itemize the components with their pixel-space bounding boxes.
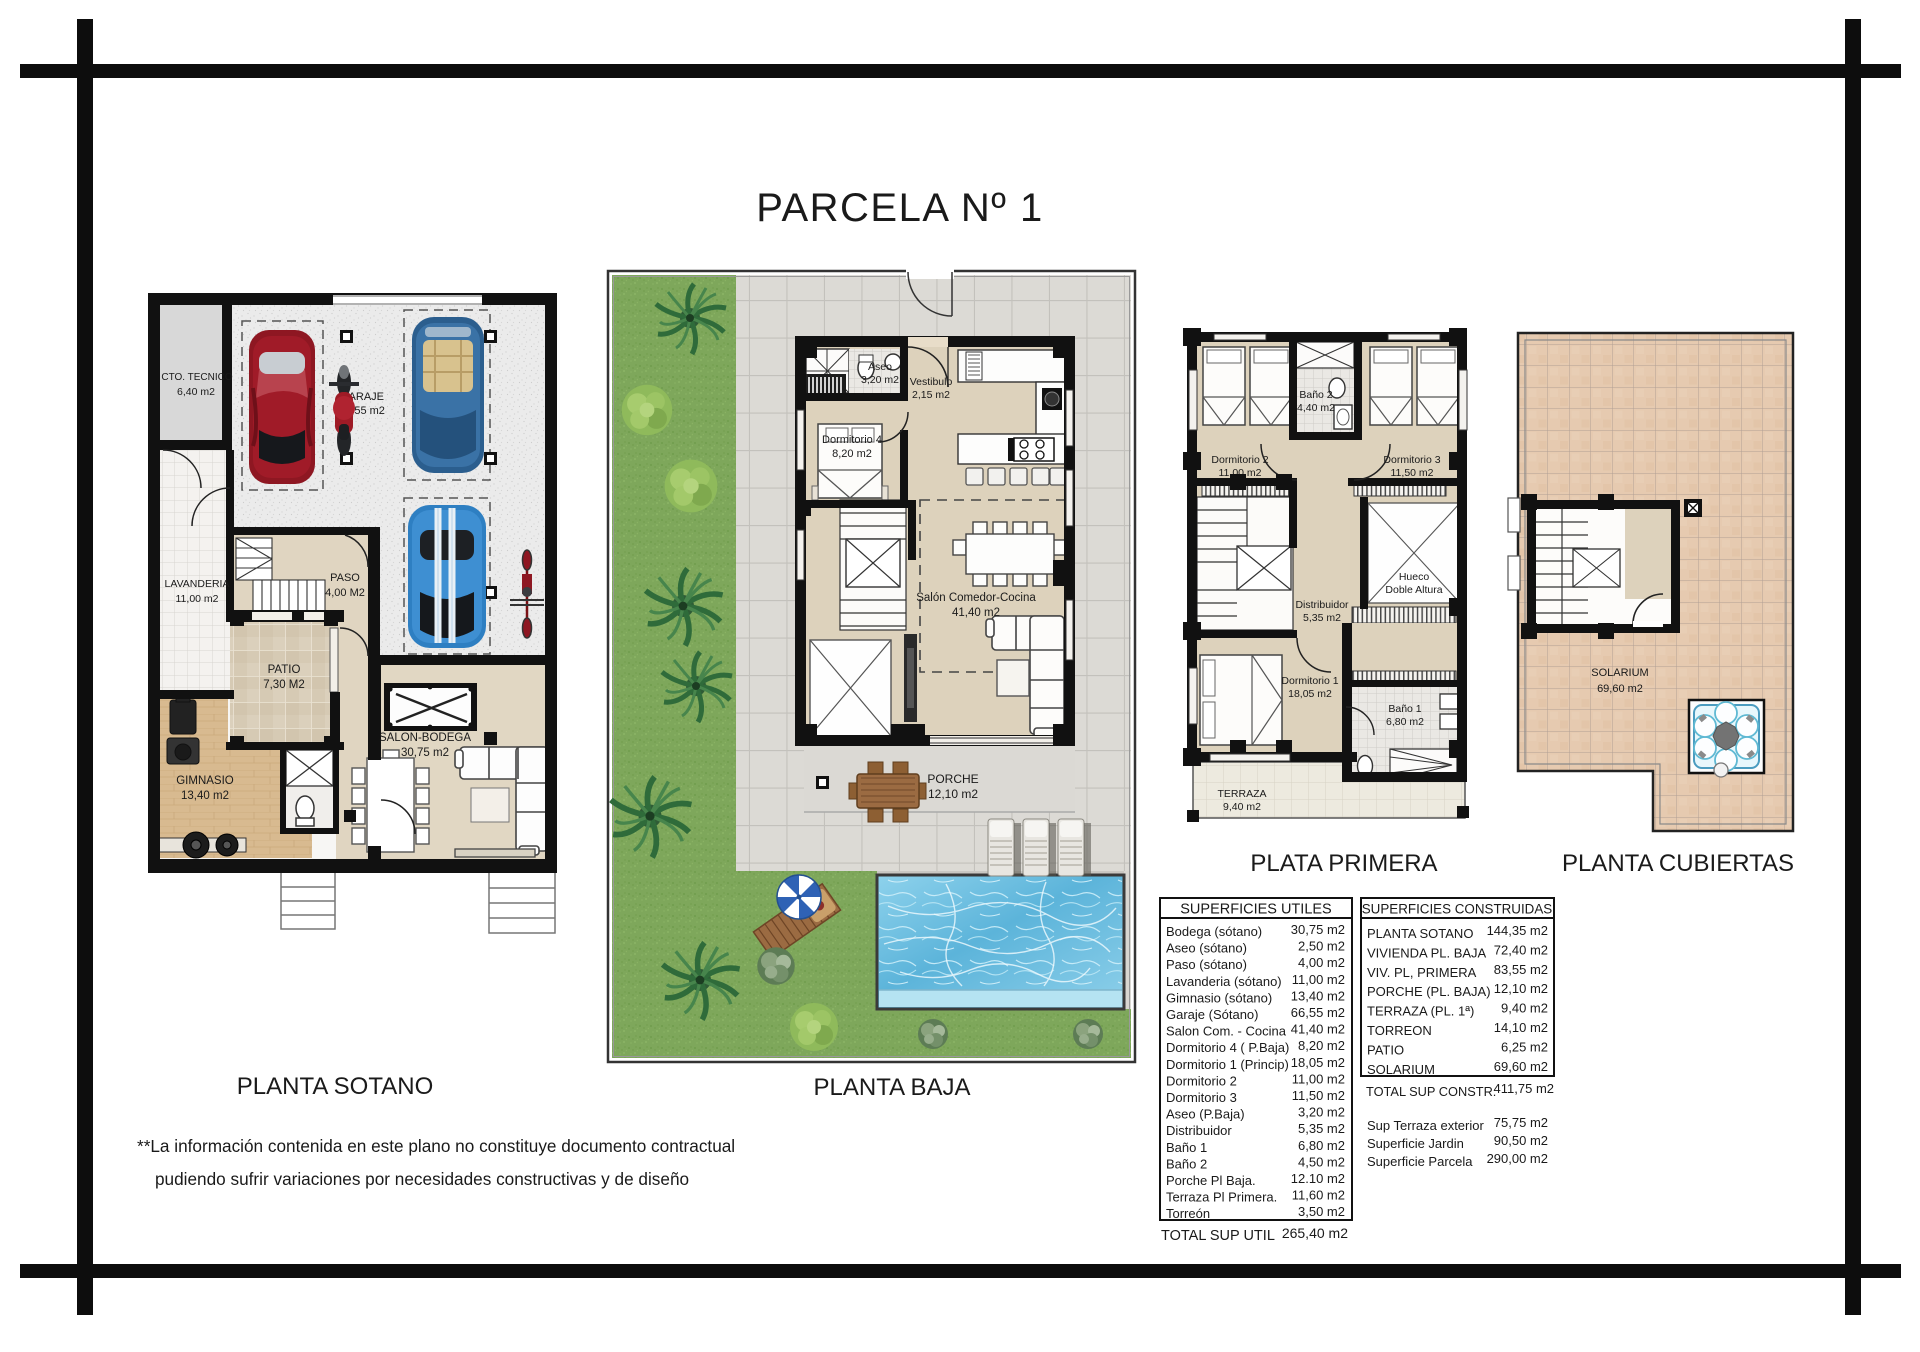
svg-text:90,50 m2: 90,50 m2 [1494,1133,1548,1148]
svg-text:LAVANDERIA: LAVANDERIA [165,578,230,590]
svg-text:Distribuidor: Distribuidor [1295,599,1349,611]
svg-text:9,40 m2: 9,40 m2 [1501,1001,1548,1016]
svg-text:Dormitorio 3: Dormitorio 3 [1166,1090,1237,1105]
svg-text:TERRAZA (PL. 1ª): TERRAZA (PL. 1ª) [1367,1004,1474,1019]
svg-text:3,20 m2: 3,20 m2 [861,374,899,386]
svg-text:PATIO: PATIO [268,664,301,676]
svg-text:Aseo (sótano): Aseo (sótano) [1166,941,1247,956]
svg-text:Sup Terraza exterior: Sup Terraza exterior [1367,1118,1484,1133]
svg-text:Salon Com. - Cocina: Salon Com. - Cocina [1166,1024,1287,1039]
svg-text:8,20 m2: 8,20 m2 [1298,1038,1345,1053]
svg-text:4,00 m2: 4,00 m2 [1298,955,1345,970]
svg-text:69,60 m2: 69,60 m2 [1597,683,1643,695]
svg-text:11,50 m2: 11,50 m2 [1292,1088,1345,1103]
svg-text:72,40 m2: 72,40 m2 [1494,942,1548,957]
svg-text:PORCHE (PL. BAJA): PORCHE (PL. BAJA) [1367,984,1491,999]
svg-text:6,80 m2: 6,80 m2 [1298,1138,1345,1153]
svg-text:11,50 m2: 11,50 m2 [1391,467,1434,479]
svg-text:Dormitorio 2: Dormitorio 2 [1166,1073,1237,1088]
svg-text:TORREON: TORREON [1367,1023,1432,1038]
svg-text:Salón Comedor-Cocina: Salón Comedor-Cocina [916,592,1036,604]
svg-text:5,35 m2: 5,35 m2 [1298,1121,1345,1136]
svg-text:VIVIENDA PL. BAJA: VIVIENDA PL. BAJA [1367,945,1487,960]
svg-text:TERRAZA: TERRAZA [1217,788,1266,800]
svg-text:41,40 m2: 41,40 m2 [952,607,1000,619]
svg-text:Gimnasio (sótano): Gimnasio (sótano) [1166,990,1272,1005]
svg-text:411,75 m2: 411,75 m2 [1494,1081,1554,1096]
svg-text:PLANTA SOTANO: PLANTA SOTANO [1367,926,1473,941]
svg-text:Distribuidor: Distribuidor [1166,1123,1232,1138]
svg-text:PORCHE: PORCHE [927,772,978,786]
svg-text:pudiendo sufrir variaciones po: pudiendo sufrir variaciones por necesida… [155,1169,689,1189]
svg-text:Baño 2: Baño 2 [1299,389,1332,401]
svg-text:PASO: PASO [330,572,360,584]
svg-text:Baño 1: Baño 1 [1388,703,1421,715]
svg-text:14,10 m2: 14,10 m2 [1494,1020,1548,1035]
svg-text:Aseo: Aseo [868,361,892,373]
svg-text:6,80 m2: 6,80 m2 [1386,716,1424,728]
svg-text:Superficie Jardin: Superficie Jardin [1367,1136,1464,1151]
svg-text:11,00 m2: 11,00 m2 [176,593,219,605]
svg-text:4,50 m2: 4,50 m2 [1298,1154,1345,1169]
svg-text:SOLARIUM: SOLARIUM [1367,1062,1435,1077]
svg-text:30,75 m2: 30,75 m2 [1291,922,1345,937]
svg-text:SUPERFICIES CONSTRUIDAS: SUPERFICIES CONSTRUIDAS [1362,902,1553,917]
svg-text:5,35 m2: 5,35 m2 [1303,612,1341,624]
svg-text:4,40 m2: 4,40 m2 [1297,402,1335,414]
svg-text:Dormitorio 2: Dormitorio 2 [1211,454,1268,466]
svg-text:SUPERFICIES UTILES: SUPERFICIES UTILES [1180,902,1331,918]
svg-text:8,20 m2: 8,20 m2 [832,448,872,460]
svg-text:2,50 m2: 2,50 m2 [1298,939,1345,954]
svg-text:290,00 m2: 290,00 m2 [1487,1151,1548,1166]
svg-text:6,40 m2: 6,40 m2 [177,386,215,398]
svg-text:Garaje (Sótano): Garaje (Sótano) [1166,1007,1259,1022]
svg-text:PARCELA Nº 1: PARCELA Nº 1 [756,186,1044,230]
svg-text:69,60 m2: 69,60 m2 [1494,1059,1548,1074]
svg-text:265,40 m2: 265,40 m2 [1282,1225,1348,1241]
svg-text:18,05 m2: 18,05 m2 [1288,688,1332,700]
svg-text:Dormitorio 4 ( P.Baja): Dormitorio 4 ( P.Baja) [1166,1040,1289,1055]
svg-text:4,00 M2: 4,00 M2 [325,587,365,599]
svg-text:Vestibulo: Vestibulo [910,376,953,388]
svg-text:11,60 m2: 11,60 m2 [1292,1188,1345,1203]
svg-text:Paso (sótano): Paso (sótano) [1166,957,1247,972]
svg-text:Torreón: Torreón [1166,1206,1210,1221]
svg-text:11,00 m2: 11,00 m2 [1292,1071,1345,1086]
svg-text:**La información contenida en: **La información contenida en este plano… [137,1136,735,1156]
svg-text:13,40 m2: 13,40 m2 [181,790,229,802]
svg-text:TOTAL SUP UTIL: TOTAL SUP UTIL [1161,1228,1275,1244]
svg-text:11,00 m2: 11,00 m2 [1292,972,1345,987]
svg-text:Dormitorio 1 (Princip): Dormitorio 1 (Princip) [1166,1057,1289,1072]
svg-text:Terraza Pl Primera.: Terraza Pl Primera. [1166,1190,1277,1205]
svg-text:83,55 m2: 83,55 m2 [1494,962,1548,977]
svg-text:144,35 m2: 144,35 m2 [1487,923,1548,938]
svg-text:PATIO: PATIO [1367,1042,1404,1057]
svg-text:Bodega (sótano): Bodega (sótano) [1166,924,1262,939]
svg-text:Dormitorio 3: Dormitorio 3 [1383,454,1440,466]
svg-text:Baño 1: Baño 1 [1166,1140,1207,1155]
svg-text:75,75 m2: 75,75 m2 [1494,1115,1548,1130]
svg-text:VIV. PL, PRIMERA: VIV. PL, PRIMERA [1367,965,1477,980]
svg-text:6,25 m2: 6,25 m2 [1501,1039,1548,1054]
svg-text:Lavanderia (sótano): Lavanderia (sótano) [1166,974,1282,989]
svg-text:66,55 m2: 66,55 m2 [1291,1005,1345,1020]
svg-text:GIMNASIO: GIMNASIO [176,775,234,787]
svg-text:PLATA PRIMERA: PLATA PRIMERA [1250,850,1437,877]
svg-text:TOTAL SUP CONSTR.: TOTAL SUP CONSTR. [1366,1084,1496,1099]
svg-text:3,20 m2: 3,20 m2 [1298,1105,1345,1120]
svg-text:Baño 2: Baño 2 [1166,1156,1207,1171]
svg-text:12,10 m2: 12,10 m2 [1494,981,1548,996]
svg-text:PLANTA SOTANO: PLANTA SOTANO [237,1073,434,1100]
svg-text:Hueco: Hueco [1399,571,1430,583]
svg-text:CTO. TECNICO: CTO. TECNICO [161,372,233,383]
svg-text:Dormitorio 1: Dormitorio 1 [1281,675,1338,687]
svg-text:Doble Altura: Doble Altura [1385,584,1442,596]
svg-text:SALON-BODEGA: SALON-BODEGA [379,732,471,744]
svg-text:12.10 m2: 12.10 m2 [1291,1171,1345,1186]
svg-text:SOLARIUM: SOLARIUM [1591,667,1648,679]
svg-text:Dormitorio 4: Dormitorio 4 [822,434,882,446]
svg-text:3,50 m2: 3,50 m2 [1298,1204,1345,1219]
svg-text:PLANTA CUBIERTAS: PLANTA CUBIERTAS [1562,850,1794,877]
svg-text:30,75 m2: 30,75 m2 [401,747,449,759]
svg-text:Porche Pl Baja.: Porche Pl Baja. [1166,1173,1256,1188]
svg-text:Superficie Parcela: Superficie Parcela [1367,1154,1473,1169]
svg-text:PLANTA BAJA: PLANTA BAJA [814,1074,971,1101]
svg-text:13,40 m2: 13,40 m2 [1291,988,1345,1003]
svg-text:9,40 m2: 9,40 m2 [1223,801,1261,813]
svg-text:41,40 m2: 41,40 m2 [1291,1022,1345,1037]
svg-text:2,15 m2: 2,15 m2 [912,389,950,401]
svg-text:Aseo (P.Baja): Aseo (P.Baja) [1166,1107,1245,1122]
svg-text:18,05 m2: 18,05 m2 [1291,1055,1345,1070]
svg-text:12,10 m2: 12,10 m2 [928,787,978,801]
svg-text:7,30 M2: 7,30 M2 [263,679,305,691]
